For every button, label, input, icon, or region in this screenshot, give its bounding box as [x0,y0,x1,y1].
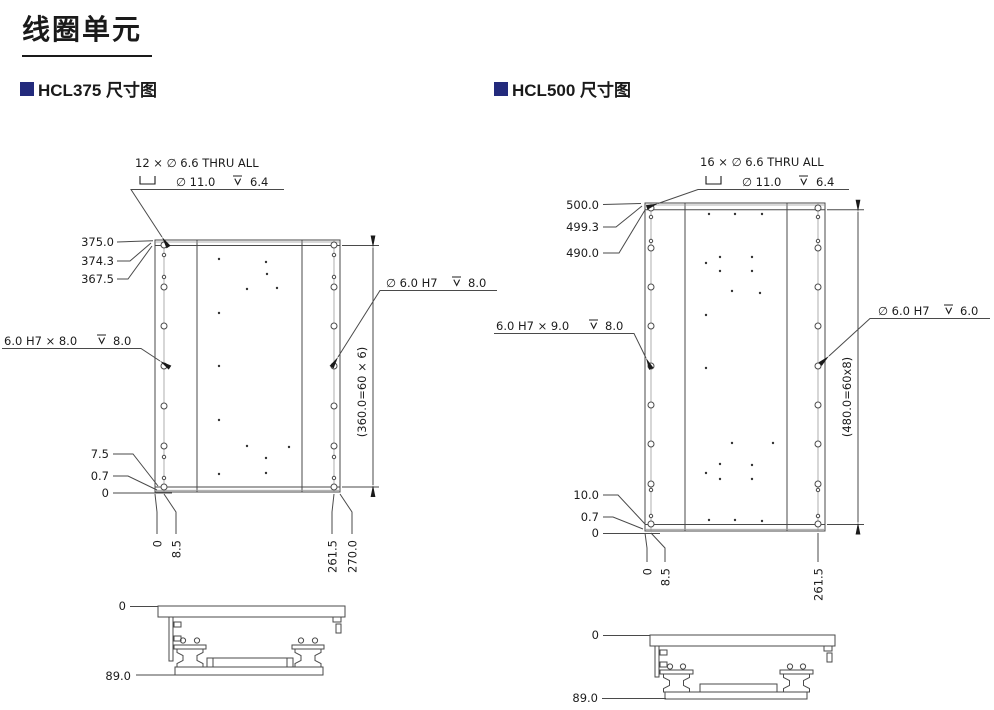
hcl375-bottom-ticks [155,494,352,534]
hcl375-right-hole-note: ∅ 6.0 H7 [386,276,438,290]
hcl500-plan-view [645,203,825,531]
depth-icon [589,320,598,328]
hcl375-band-lines [155,246,340,488]
hcl375-edge-offset-lines [155,242,340,490]
hcl500-cbore-depth: 6.4 [816,175,834,189]
hcl375-side-bottom-plate [175,667,323,675]
hcl500-thru-leader [658,190,849,204]
hcl375-hole-centerlines [164,240,334,492]
hcl375-dim-0: 0 [102,486,109,500]
hcl375-right-hole-depth: 8.0 [468,276,486,290]
hcl375-side-hole-leader [2,349,160,362]
hcl500-band-lines [645,210,825,525]
depth-icon [452,277,461,285]
hcl500-side-top-plate [650,635,835,646]
hcl500-dim-0-7: 0.7 [581,510,599,524]
hcl375-side-dim-89: 89.0 [105,669,131,683]
depth-icon [944,305,953,313]
hcl500-edge-offset-lines [645,205,825,529]
depth-icon [233,176,242,184]
hcl500-right-hole-leader [829,319,990,357]
hcl375-side-center-plate [207,658,293,667]
hcl500-side-hole-note: 6.0 H7 × 9.0 [496,319,569,333]
hcl375-dowel-holes [218,258,290,475]
hcl500-labels: 16 × ∅ 6.6 THRU ALL ∅ 11.0 6.4 500.0 499… [496,155,978,705]
hcl500-side-view [602,635,835,699]
hcl375-dim-0-7: 0.7 [91,469,109,483]
hcl375-dimensions [2,190,497,535]
hcl375-cbore-depth: 6.4 [250,175,268,189]
hcl500-bottom-ticks [645,533,818,562]
hcl375-side-hole-note: 6.0 H7 × 8.0 [4,334,77,348]
hcl375-plate-outline [155,240,340,492]
depth-icon [97,335,106,343]
hcl375-side-view [130,606,345,675]
hcl375-dim-x261-5: 261.5 [326,540,340,573]
hcl500-top-left-leaders [603,204,645,254]
hcl375-dim-x270: 270.0 [346,540,360,573]
page: 线圈单元 HCL375 尺寸图 HCL500 尺寸图 [0,0,994,710]
hcl500-right-hole-note: ∅ 6.0 H7 [878,304,930,318]
hcl375-dim-367-5: 367.5 [81,272,114,286]
hcl375-dim-x8-5: 8.5 [170,540,184,558]
hcl375-side-top-plate [158,606,345,617]
hcl500-pitch-dim: (480.0=60x8) [840,357,854,437]
hcl500-plate-outline [645,203,825,531]
hcl500-dim-x0: 0 [641,568,655,575]
hcl500-dim-10: 10.0 [573,488,599,502]
hcl500-dim-490: 490.0 [566,246,599,260]
hcl500-side-dim-89: 89.0 [572,691,598,705]
counterbore-icon [140,176,155,184]
depth-icon [799,176,808,184]
hcl500-dim-499-3: 499.3 [566,220,599,234]
hcl375-plan-view [155,240,340,492]
counterbore-icon [706,176,721,184]
hcl500-dim-x261-5: 261.5 [812,568,826,601]
hcl500-bolt-holes [648,205,821,527]
hcl500-side-dim-leaders [602,636,666,699]
hcl500-side-dim-0: 0 [592,628,599,642]
hcl500-dowel-holes [705,213,774,522]
hcl375-side-dim-0: 0 [119,599,126,613]
hcl375-bolt-holes [161,242,337,490]
hcl500-hole-centerlines [651,203,818,531]
hcl500-thru-note: 16 × ∅ 6.6 THRU ALL [700,155,824,169]
hcl500-inner-lines [685,203,787,531]
hcl375-inner-lines [197,240,302,492]
dimension-drawing: 12 × ∅ 6.6 THRU ALL ∅ 11.0 6.4 375.0 374… [0,0,994,710]
hcl375-dim-374-3: 374.3 [81,254,114,268]
hcl500-side-bottom-plate [665,692,807,699]
hcl375-dim-x0: 0 [151,540,165,547]
hcl375-labels: 12 × ∅ 6.6 THRU ALL ∅ 11.0 6.4 375.0 374… [4,156,486,683]
hcl500-dim-500: 500.0 [566,198,599,212]
hcl500-cbore-dia: ∅ 11.0 [742,175,781,189]
hcl500-side-hole-depth: 8.0 [605,319,623,333]
hcl375-pitch-dim: (360.0=60 × 6) [355,347,369,437]
hcl375-top-left-leaders [117,241,153,279]
hcl375-dim-7-5: 7.5 [91,447,109,461]
hcl500-dim-0: 0 [592,526,599,540]
hcl375-cbore-dia: ∅ 11.0 [176,175,215,189]
hcl500-side-hole-leader [494,334,646,359]
hcl500-right-hole-depth: 6.0 [960,304,978,318]
hcl375-thru-note: 12 × ∅ 6.6 THRU ALL [135,156,259,170]
hcl375-side-hole-depth: 8.0 [113,334,131,348]
hcl375-thru-leader [131,190,284,238]
hcl500-side-center-plate [700,684,777,692]
hcl375-dim-375: 375.0 [81,235,114,249]
hcl500-dim-x8-5: 8.5 [659,568,673,586]
